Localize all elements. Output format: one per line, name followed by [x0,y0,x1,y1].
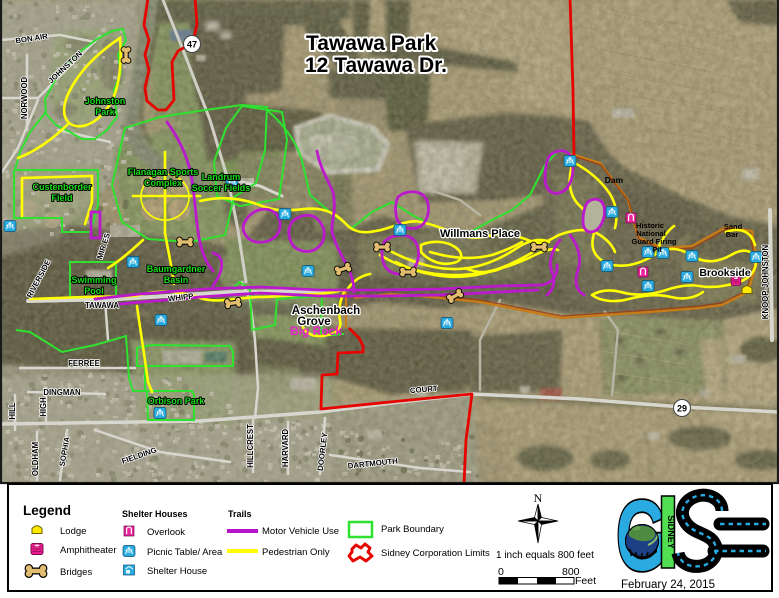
svg-text:Park Boundary: Park Boundary [381,524,444,535]
svg-text:NORWOOD: NORWOOD [20,76,29,119]
svg-text:Pit: Pit [652,245,662,254]
svg-text:FERREE: FERREE [68,359,100,368]
svg-text:0: 0 [498,566,504,578]
svg-text:DINGMAN: DINGMAN [43,388,81,397]
svg-text:Trails: Trails [228,509,252,519]
svg-text:Tawawa Park: Tawawa Park [306,32,437,55]
svg-text:Willmans Place: Willmans Place [440,228,520,240]
svg-text:Flanagan Sports: Flanagan Sports [128,167,199,177]
svg-text:Brookside: Brookside [699,267,751,279]
svg-text:1 inch equals 800 feet: 1 inch equals 800 feet [496,550,594,561]
svg-text:Lodge: Lodge [60,526,86,537]
svg-text:12 Tawawa Dr.: 12 Tawawa Dr. [305,54,447,77]
svg-text:Shelter House: Shelter House [147,566,207,577]
svg-text:Bridges: Bridges [60,567,92,578]
svg-text:Legend: Legend [23,503,71,518]
svg-text:Orbison Park: Orbison Park [148,396,206,406]
svg-text:Swimming: Swimming [71,275,116,285]
svg-text:Big Rock: Big Rock [290,324,342,338]
svg-text:Overlook: Overlook [147,527,185,538]
svg-text:KNOOP-JOHNSTON: KNOOP-JOHNSTON [761,244,770,319]
svg-text:Baumgardner: Baumgardner [147,264,206,274]
svg-text:HIGH: HIGH [39,397,48,417]
svg-text:Shelter Houses: Shelter Houses [122,509,188,519]
svg-text:Pedestrian Only: Pedestrian Only [262,547,330,558]
svg-text:Bar: Bar [726,230,739,239]
svg-text:Custenborder: Custenborder [32,182,92,192]
svg-text:SIDNEY: SIDNEY [666,515,676,549]
svg-text:Complex: Complex [144,178,182,188]
svg-text:29: 29 [677,404,687,414]
svg-text:Pool: Pool [84,286,104,296]
svg-text:HARVARD: HARVARD [281,428,290,467]
svg-text:Feet: Feet [575,575,596,587]
svg-text:Amphitheater: Amphitheater [60,545,117,556]
svg-text:Basin: Basin [164,275,189,285]
svg-text:Johnston: Johnston [85,96,126,106]
svg-text:Sidney Corporation Limits: Sidney Corporation Limits [381,548,490,559]
svg-text:HILLCREST: HILLCREST [246,424,255,468]
svg-text:Soccer Fields: Soccer Fields [192,183,251,193]
svg-text:Motor Vehicle Use: Motor Vehicle Use [262,526,339,537]
svg-text:OLDHAM: OLDHAM [31,442,40,476]
svg-text:Landrum: Landrum [202,172,241,182]
svg-text:Dam: Dam [605,175,624,185]
svg-text:47: 47 [187,40,197,50]
svg-text:February 24, 2015: February 24, 2015 [621,579,715,591]
svg-text:N: N [534,491,543,505]
svg-text:Park: Park [95,107,116,117]
svg-text:Field: Field [51,193,72,203]
svg-text:Picnic Table/ Area: Picnic Table/ Area [147,547,223,558]
svg-text:TAWAWA: TAWAWA [85,301,119,310]
svg-text:HILL: HILL [8,402,17,420]
